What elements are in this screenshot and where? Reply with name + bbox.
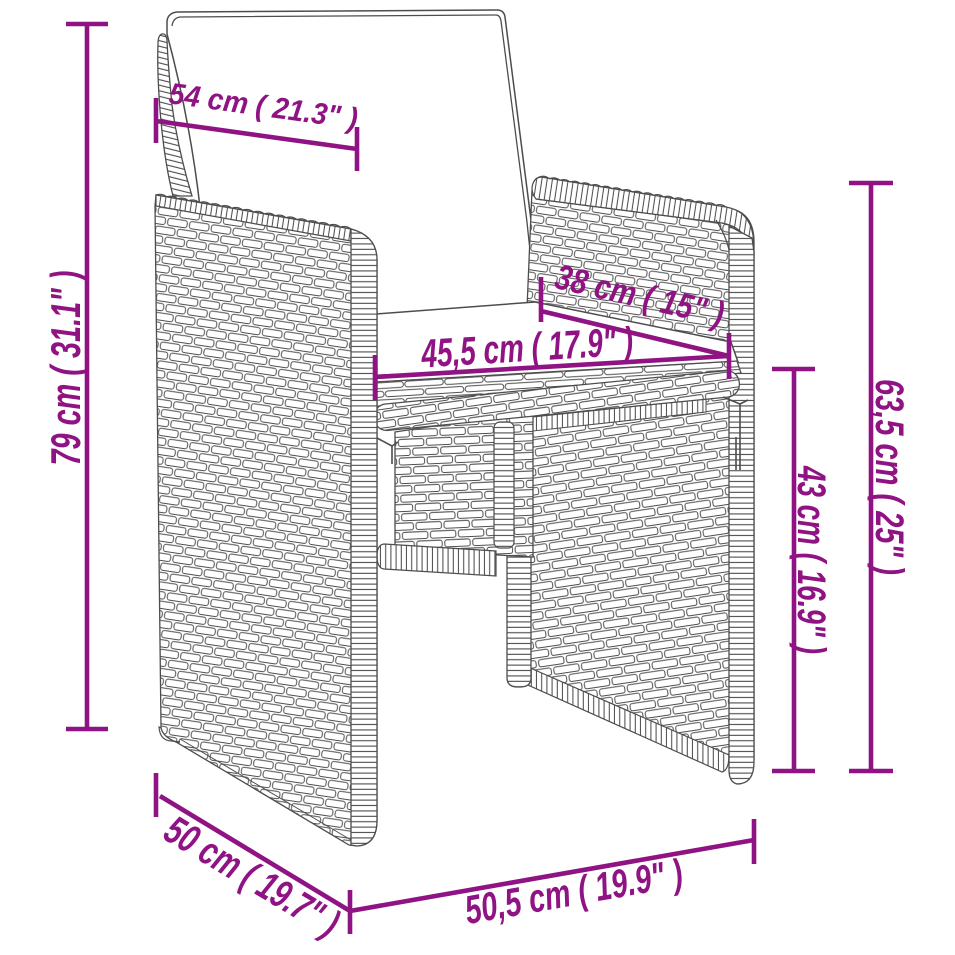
svg-text:50,5 cm ( 19.9" ): 50,5 cm ( 19.9" ) bbox=[462, 851, 686, 933]
svg-text:63,5 cm ( 25" ): 63,5 cm ( 25" ) bbox=[867, 379, 911, 575]
svg-text:79 cm ( 31.1" ): 79 cm ( 31.1" ) bbox=[42, 271, 89, 466]
svg-text:50 cm ( 19.7" ): 50 cm ( 19.7" ) bbox=[157, 808, 347, 946]
svg-text:43 cm ( 16.9" ): 43 cm ( 16.9" ) bbox=[789, 465, 833, 654]
